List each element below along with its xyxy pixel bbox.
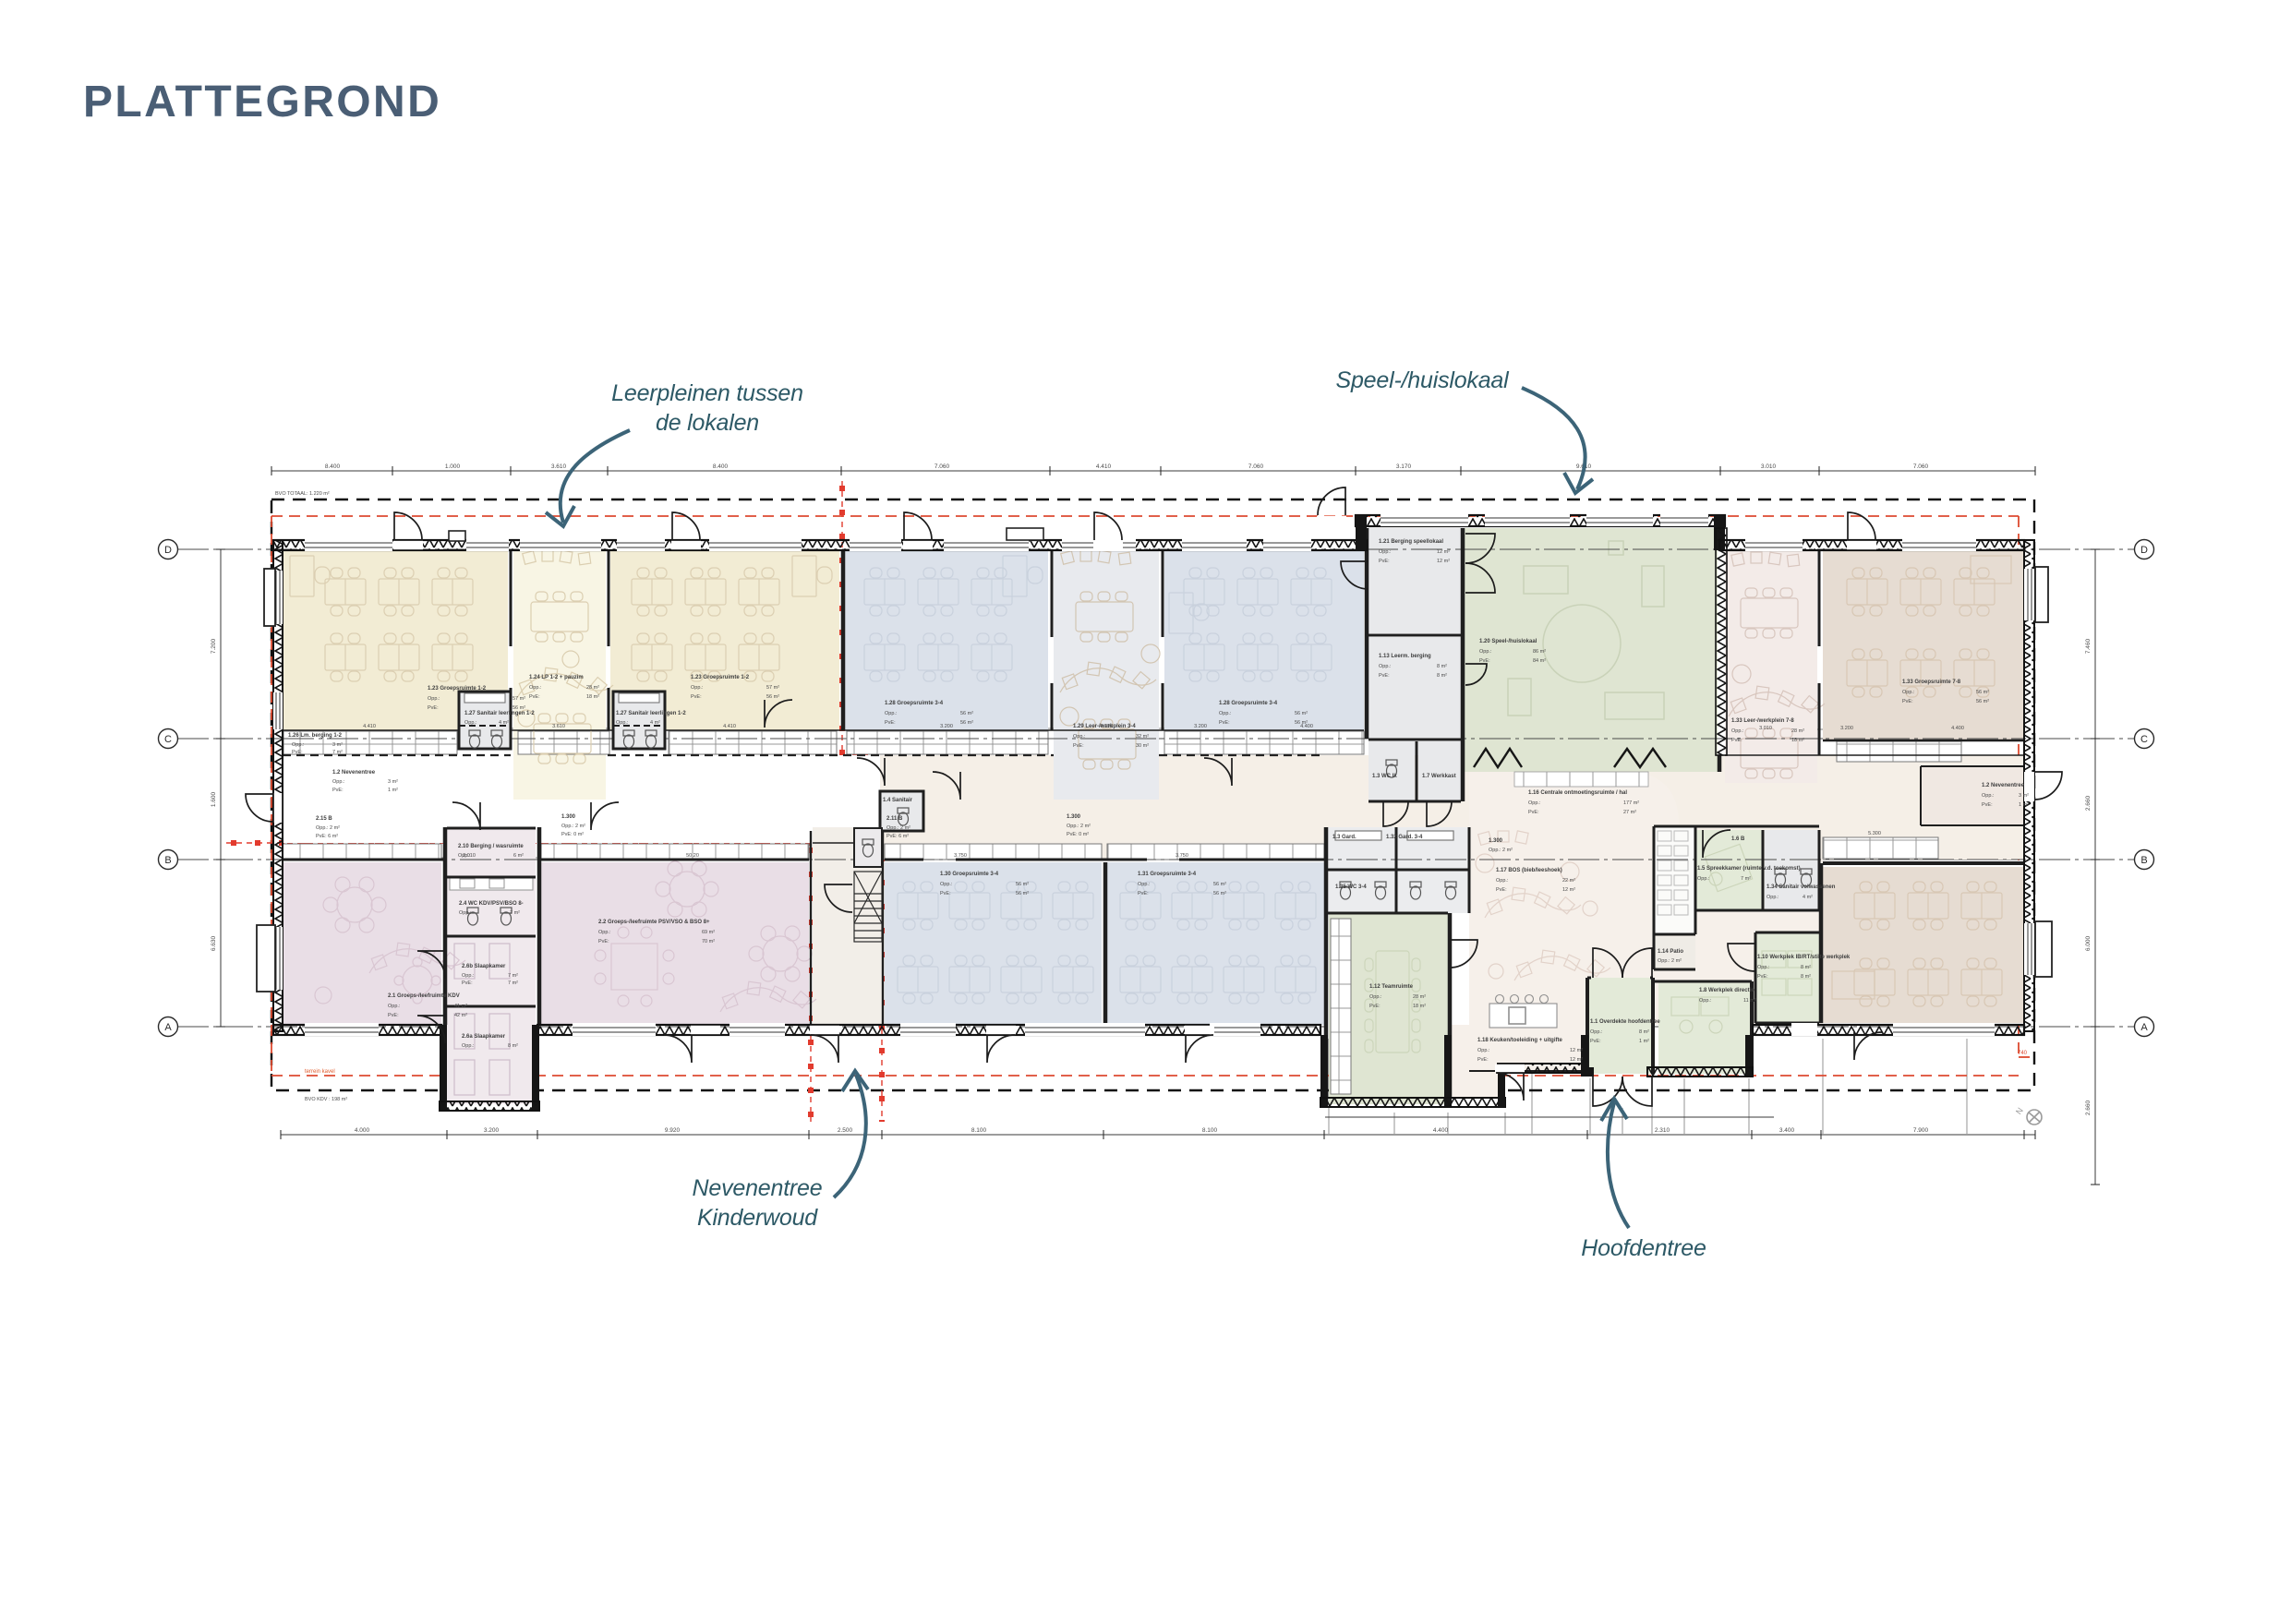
svg-text:1.4 Sanitair: 1.4 Sanitair bbox=[883, 798, 913, 803]
svg-text:1.33 Groepsruimte 7-8: 1.33 Groepsruimte 7-8 bbox=[1902, 680, 1961, 685]
svg-text:2.2 Groeps-/leefruimte PSV/VSO: 2.2 Groeps-/leefruimte PSV/VSO & BSO 8+ bbox=[598, 920, 710, 925]
svg-text:56 m²: 56 m² bbox=[960, 711, 973, 716]
svg-text:PvE:: PvE: bbox=[1379, 673, 1390, 679]
svg-text:Opp.: 2 m²: Opp.: 2 m² bbox=[316, 825, 340, 831]
svg-text:1.3 WC lk: 1.3 WC lk bbox=[1372, 774, 1397, 779]
svg-text:1.28 Groepsruimte 3-4: 1.28 Groepsruimte 3-4 bbox=[885, 701, 944, 706]
svg-text:1.16 Centrale ontmoetingsruimt: 1.16 Centrale ontmoetingsruimte / hal bbox=[1528, 790, 1627, 796]
svg-text:8.400: 8.400 bbox=[325, 463, 341, 470]
svg-text:PvE:: PvE: bbox=[1477, 1057, 1489, 1063]
svg-text:11 m²: 11 m² bbox=[1743, 998, 1756, 1004]
svg-text:Opp.:: Opp.: bbox=[1766, 895, 1779, 900]
svg-text:Hoofdentree: Hoofdentree bbox=[1581, 1235, 1706, 1261]
svg-text:Leerpleinen tussen: Leerpleinen tussen bbox=[611, 380, 803, 406]
svg-text:1.20 Speel-/huislokaal: 1.20 Speel-/huislokaal bbox=[1479, 639, 1537, 644]
svg-text:4 m²: 4 m² bbox=[1803, 895, 1813, 900]
svg-text:PvE:: PvE: bbox=[691, 694, 702, 700]
svg-text:1.5 Spreekkamer (ruimte v.d. t: 1.5 Spreekkamer (ruimte v.d. toekomst) bbox=[1697, 866, 1801, 872]
svg-text:57 m²: 57 m² bbox=[766, 685, 779, 691]
svg-text:4.410: 4.410 bbox=[1096, 463, 1112, 470]
svg-text:1.2 Nevenentree: 1.2 Nevenentree bbox=[1982, 783, 2025, 788]
svg-text:PvE:: PvE: bbox=[1369, 1004, 1381, 1009]
svg-text:PvE:: PvE: bbox=[332, 788, 344, 793]
svg-text:PvE:: PvE: bbox=[529, 694, 540, 700]
svg-text:4.100: 4.100 bbox=[1100, 724, 1113, 729]
svg-text:PvE:: PvE: bbox=[292, 750, 303, 755]
svg-text:3.750: 3.750 bbox=[954, 853, 967, 859]
svg-text:1.14 Patio: 1.14 Patio bbox=[1658, 949, 1683, 955]
svg-text:Opp.:: Opp.: bbox=[1073, 734, 1086, 740]
svg-text:2.6b Slaapkamer: 2.6b Slaapkamer bbox=[462, 964, 506, 969]
svg-text:Opp.:: Opp.: bbox=[292, 742, 305, 748]
svg-text:Opp.:: Opp.: bbox=[885, 711, 898, 716]
svg-text:7 m²: 7 m² bbox=[332, 750, 343, 755]
svg-text:C: C bbox=[164, 734, 172, 745]
svg-text:9.920: 9.920 bbox=[665, 1127, 681, 1134]
svg-text:PvE:: PvE: bbox=[1731, 738, 1742, 743]
svg-text:12 m²: 12 m² bbox=[1562, 887, 1575, 893]
svg-text:2.310: 2.310 bbox=[1655, 1127, 1670, 1134]
svg-text:18 m²: 18 m² bbox=[1791, 738, 1804, 743]
svg-text:18 m²: 18 m² bbox=[1413, 1004, 1426, 1009]
svg-text:1.27 Sanitair leerlingen 1-2: 1.27 Sanitair leerlingen 1-2 bbox=[464, 711, 535, 716]
svg-text:Opp.:: Opp.: bbox=[691, 685, 704, 691]
svg-text:2.500: 2.500 bbox=[838, 1127, 853, 1134]
svg-text:4.400: 4.400 bbox=[1951, 726, 1964, 731]
svg-text:7.060: 7.060 bbox=[1248, 463, 1264, 470]
svg-text:1.18 Keuken/toeleiding + uitgi: 1.18 Keuken/toeleiding + uitgifte bbox=[1477, 1038, 1563, 1043]
svg-text:4.410: 4.410 bbox=[363, 724, 376, 729]
svg-text:3.200: 3.200 bbox=[1194, 724, 1207, 729]
svg-text:7 m²: 7 m² bbox=[508, 980, 518, 986]
svg-text:B: B bbox=[164, 855, 171, 866]
svg-text:PvE:: PvE: bbox=[1073, 743, 1084, 749]
svg-text:Opp.:: Opp.: bbox=[1757, 965, 1770, 970]
svg-text:Opp.:: Opp.: bbox=[1902, 690, 1915, 695]
svg-text:41 m²: 41 m² bbox=[454, 1004, 467, 1009]
svg-text:7 m²: 7 m² bbox=[510, 910, 520, 916]
svg-text:1 m²: 1 m² bbox=[1639, 1039, 1649, 1044]
svg-text:1 m²: 1 m² bbox=[388, 788, 398, 793]
svg-text:3.010: 3.010 bbox=[1759, 726, 1772, 731]
svg-text:4.000: 4.000 bbox=[355, 1127, 370, 1134]
svg-text:3.200: 3.200 bbox=[940, 724, 953, 729]
svg-text:8.100: 8.100 bbox=[1202, 1127, 1218, 1134]
svg-text:Opp.:: Opp.: bbox=[1379, 549, 1392, 555]
svg-text:3.170: 3.170 bbox=[1396, 463, 1412, 470]
svg-text:56 m²: 56 m² bbox=[1976, 690, 1989, 695]
svg-text:56 m²: 56 m² bbox=[1016, 882, 1029, 887]
svg-text:4.400: 4.400 bbox=[1433, 1127, 1449, 1134]
svg-text:2.6a Slaapkamer: 2.6a Slaapkamer bbox=[462, 1034, 506, 1040]
svg-text:4.410: 4.410 bbox=[723, 724, 736, 729]
svg-text:PvE:: PvE: bbox=[1379, 559, 1390, 564]
svg-text:57 m²: 57 m² bbox=[512, 696, 525, 702]
svg-text:Opp.:: Opp.: bbox=[462, 1043, 475, 1049]
svg-text:PvE:: PvE: bbox=[1479, 658, 1490, 664]
svg-text:2.660: 2.660 bbox=[2085, 1100, 2092, 1115]
svg-text:1.1 Overdekte hoofdentree: 1.1 Overdekte hoofdentree bbox=[1590, 1019, 1660, 1025]
svg-text:28 m²: 28 m² bbox=[1413, 994, 1426, 1000]
svg-text:18 m²: 18 m² bbox=[586, 694, 599, 700]
svg-text:1.33 Leer-/werkplein 7-8: 1.33 Leer-/werkplein 7-8 bbox=[1731, 718, 1794, 724]
svg-text:3 m²: 3 m² bbox=[388, 779, 398, 785]
svg-text:Opp.:: Opp.: bbox=[598, 930, 611, 935]
svg-text:4 m²: 4 m² bbox=[650, 720, 660, 726]
svg-text:56 m²: 56 m² bbox=[1295, 711, 1308, 716]
svg-text:3.610: 3.610 bbox=[551, 463, 567, 470]
svg-text:1.13 Leerm. berging: 1.13 Leerm. berging bbox=[1379, 654, 1431, 659]
svg-text:27 m²: 27 m² bbox=[1623, 810, 1636, 815]
svg-text:BVO TOTAAL: 1.220 m²: BVO TOTAAL: 1.220 m² bbox=[275, 491, 330, 497]
svg-text:32 m²: 32 m² bbox=[1136, 734, 1149, 740]
svg-text:7.900: 7.900 bbox=[1913, 1127, 1929, 1134]
svg-text:7.200: 7.200 bbox=[211, 638, 217, 654]
svg-text:Speel-/huislokaal: Speel-/huislokaal bbox=[1336, 367, 1511, 393]
svg-text:1.8 Werkplek directie: 1.8 Werkplek directie bbox=[1699, 988, 1754, 993]
svg-text:1 m²: 1 m² bbox=[2019, 802, 2029, 808]
svg-text:Nevenentree: Nevenentree bbox=[693, 1175, 823, 1201]
svg-text:Opp.:: Opp.: bbox=[616, 720, 629, 726]
svg-text:1.27 Sanitair leerlingen 1-2: 1.27 Sanitair leerlingen 1-2 bbox=[616, 711, 686, 716]
svg-text:A: A bbox=[2140, 1022, 2148, 1033]
svg-text:C: C bbox=[2140, 734, 2148, 745]
svg-text:Opp.:: Opp.: bbox=[464, 720, 477, 726]
svg-text:D: D bbox=[164, 545, 172, 556]
svg-text:2.11 B: 2.11 B bbox=[886, 816, 903, 822]
svg-text:1.24 LP 1-2 + pauzim: 1.24 LP 1-2 + pauzim bbox=[529, 675, 584, 680]
svg-text:Opp.:: Opp.: bbox=[1477, 1048, 1490, 1053]
svg-text:3.200: 3.200 bbox=[484, 1127, 500, 1134]
svg-text:1.23 Groepsruimte 1-2: 1.23 Groepsruimte 1-2 bbox=[428, 686, 487, 692]
svg-text:56 m²: 56 m² bbox=[766, 694, 779, 700]
svg-text:740: 740 bbox=[2018, 1051, 2028, 1056]
svg-text:Opp.: 2 m²: Opp.: 2 m² bbox=[1658, 958, 1682, 964]
svg-text:PvE:: PvE: bbox=[1902, 699, 1913, 704]
svg-text:3.200: 3.200 bbox=[1840, 726, 1853, 731]
svg-text:1.300: 1.300 bbox=[1489, 838, 1503, 844]
svg-text:PLATTEGROND: PLATTEGROND bbox=[83, 78, 441, 126]
svg-text:7 m²: 7 m² bbox=[508, 973, 518, 979]
svg-text:Opp.:: Opp.: bbox=[1369, 994, 1382, 1000]
svg-text:12 m²: 12 m² bbox=[1437, 559, 1450, 564]
svg-text:Opp.:: Opp.: bbox=[1138, 882, 1151, 887]
svg-text:28 m²: 28 m² bbox=[586, 685, 599, 691]
svg-text:5.300: 5.300 bbox=[1868, 831, 1881, 836]
svg-text:3.400: 3.400 bbox=[1779, 1127, 1795, 1134]
svg-text:1.300: 1.300 bbox=[1067, 814, 1081, 820]
svg-text:4 m²: 4 m² bbox=[499, 720, 509, 726]
svg-text:1.6 B: 1.6 B bbox=[1731, 836, 1745, 842]
svg-text:1.600: 1.600 bbox=[211, 791, 217, 807]
svg-text:12 m²: 12 m² bbox=[1570, 1057, 1583, 1063]
svg-text:12 m²: 12 m² bbox=[1570, 1048, 1583, 1053]
svg-text:PvE:: PvE: bbox=[885, 720, 896, 726]
svg-text:PvE:: PvE: bbox=[428, 705, 439, 711]
svg-text:1.32 Gard. 3-4: 1.32 Gard. 3-4 bbox=[1386, 835, 1423, 840]
svg-text:22 m²: 22 m² bbox=[1562, 878, 1575, 884]
svg-text:7.460: 7.460 bbox=[2085, 638, 2092, 654]
svg-text:1.12 Teamruimte: 1.12 Teamruimte bbox=[1369, 984, 1414, 990]
svg-text:PvE: 0 m²: PvE: 0 m² bbox=[1067, 832, 1089, 837]
svg-text:Opp.:: Opp.: bbox=[1590, 1029, 1603, 1035]
svg-text:56 m²: 56 m² bbox=[1016, 891, 1029, 896]
svg-text:PvE:: PvE: bbox=[1219, 720, 1230, 726]
svg-text:Opp.:: Opp.: bbox=[529, 685, 542, 691]
svg-text:Opp.:: Opp.: bbox=[940, 882, 953, 887]
svg-text:84 m²: 84 m² bbox=[1533, 658, 1546, 664]
svg-text:6.630: 6.630 bbox=[211, 935, 217, 951]
svg-text:Opp.: 2 m²: Opp.: 2 m² bbox=[886, 825, 910, 831]
svg-text:6 m²: 6 m² bbox=[513, 853, 524, 859]
svg-text:8 m²: 8 m² bbox=[508, 1043, 518, 1049]
svg-text:PvE:: PvE: bbox=[1757, 974, 1768, 980]
svg-text:1.2 Nevenentree: 1.2 Nevenentree bbox=[332, 770, 376, 776]
svg-text:Opp.: 2 m²: Opp.: 2 m² bbox=[561, 824, 585, 829]
svg-text:2.010: 2.010 bbox=[463, 853, 476, 859]
svg-text:8 m²: 8 m² bbox=[1801, 965, 1811, 970]
svg-text:Opp.:: Opp.: bbox=[1479, 649, 1492, 655]
svg-text:PvE:: PvE: bbox=[1982, 802, 1993, 808]
svg-text:BVO KDV : 198 m²: BVO KDV : 198 m² bbox=[305, 1097, 347, 1102]
svg-text:6.000: 6.000 bbox=[2085, 935, 2092, 951]
svg-text:1.31 Groepsruimte 3-4: 1.31 Groepsruimte 3-4 bbox=[1138, 872, 1197, 877]
svg-text:8 m²: 8 m² bbox=[1437, 664, 1447, 669]
svg-text:1.30 Groepsruimte 3-4: 1.30 Groepsruimte 3-4 bbox=[940, 872, 999, 877]
svg-text:42 m²: 42 m² bbox=[454, 1013, 467, 1018]
svg-text:Opp.:: Opp.: bbox=[388, 1004, 401, 1009]
svg-text:7.060: 7.060 bbox=[1913, 463, 1929, 470]
svg-text:3.010: 3.010 bbox=[1761, 463, 1777, 470]
svg-text:30 m²: 30 m² bbox=[1136, 743, 1149, 749]
svg-text:Opp.:: Opp.: bbox=[428, 696, 440, 702]
svg-text:1.000: 1.000 bbox=[445, 463, 461, 470]
svg-text:70 m²: 70 m² bbox=[702, 939, 715, 944]
svg-text:Opp.:: Opp.: bbox=[1219, 711, 1232, 716]
svg-text:PvE:: PvE: bbox=[462, 980, 473, 986]
svg-text:Opp.:: Opp.: bbox=[1982, 793, 1995, 799]
svg-text:A: A bbox=[164, 1022, 172, 1033]
svg-text:terrein kavel: terrein kavel bbox=[305, 1069, 335, 1075]
svg-text:2.15 B: 2.15 B bbox=[316, 816, 332, 822]
svg-text:8.100: 8.100 bbox=[971, 1127, 987, 1134]
svg-text:D: D bbox=[2140, 545, 2148, 556]
svg-text:1.17 BOS (bieb/leeshoek): 1.17 BOS (bieb/leeshoek) bbox=[1496, 868, 1562, 873]
svg-text:Opp.:: Opp.: bbox=[462, 973, 475, 979]
svg-text:177 m²: 177 m² bbox=[1623, 800, 1639, 806]
svg-text:8.400: 8.400 bbox=[713, 463, 729, 470]
svg-text:1.300: 1.300 bbox=[561, 814, 576, 820]
svg-text:PvE: 6 m²: PvE: 6 m² bbox=[886, 834, 909, 839]
svg-text:7 m²: 7 m² bbox=[1741, 876, 1751, 882]
svg-text:12 m²: 12 m² bbox=[1437, 549, 1450, 555]
svg-text:Opp.:: Opp.: bbox=[1699, 998, 1712, 1004]
svg-text:8 m²: 8 m² bbox=[1437, 673, 1447, 679]
svg-text:4.400: 4.400 bbox=[1300, 724, 1313, 729]
svg-text:Opp.:: Opp.: bbox=[1731, 728, 1744, 734]
svg-text:Opp.:: Opp.: bbox=[1496, 878, 1509, 884]
svg-text:PvE:: PvE: bbox=[940, 891, 951, 896]
svg-text:Kinderwoud: Kinderwoud bbox=[697, 1205, 818, 1231]
svg-text:PvE: 6 m²: PvE: 6 m² bbox=[316, 834, 338, 839]
svg-text:2.1 Groeps-/leefruimte KDV: 2.1 Groeps-/leefruimte KDV bbox=[388, 993, 460, 999]
svg-text:56 m²: 56 m² bbox=[1213, 891, 1226, 896]
svg-text:1.21 Berging speellokaal: 1.21 Berging speellokaal bbox=[1379, 539, 1443, 545]
svg-text:de lokalen: de lokalen bbox=[656, 410, 759, 436]
svg-text:8 m²: 8 m² bbox=[1639, 1029, 1649, 1035]
svg-text:8 m²: 8 m² bbox=[1801, 974, 1811, 980]
svg-text:1.10 Werkplek IB/RT/stilte wer: 1.10 Werkplek IB/RT/stilte werkplek bbox=[1757, 955, 1851, 960]
svg-text:3 m²: 3 m² bbox=[332, 742, 343, 748]
svg-text:56 m²: 56 m² bbox=[1976, 699, 1989, 704]
svg-text:PvE:: PvE: bbox=[1138, 891, 1149, 896]
svg-text:1.35 WC 3-4: 1.35 WC 3-4 bbox=[1335, 884, 1367, 890]
svg-text:PvE:: PvE: bbox=[388, 1013, 399, 1018]
svg-text:7.060: 7.060 bbox=[934, 463, 950, 470]
svg-text:28 m²: 28 m² bbox=[1791, 728, 1804, 734]
svg-text:PvE:: PvE: bbox=[1590, 1039, 1601, 1044]
svg-text:2.660: 2.660 bbox=[2085, 795, 2092, 811]
svg-text:3.750: 3.750 bbox=[1176, 853, 1188, 859]
svg-text:PvE:: PvE: bbox=[1528, 810, 1539, 815]
svg-text:PvE:: PvE: bbox=[1496, 887, 1507, 893]
svg-text:3.610: 3.610 bbox=[552, 724, 565, 729]
svg-text:PvE:: PvE: bbox=[598, 939, 609, 944]
svg-text:2.4 WC KDV/PSV/BSO 8-: 2.4 WC KDV/PSV/BSO 8- bbox=[459, 901, 524, 907]
svg-text:3 m²: 3 m² bbox=[2019, 793, 2029, 799]
svg-text:B: B bbox=[2140, 855, 2147, 866]
svg-text:56 m²: 56 m² bbox=[1213, 882, 1226, 887]
svg-text:Opp.:: Opp.: bbox=[459, 910, 472, 916]
svg-text:Opp.: 2 m²: Opp.: 2 m² bbox=[1489, 848, 1513, 853]
svg-text:Opp.:: Opp.: bbox=[1528, 800, 1541, 806]
svg-text:PvE: 0 m²: PvE: 0 m² bbox=[561, 832, 584, 837]
svg-text:Opp.:: Opp.: bbox=[1379, 664, 1392, 669]
svg-text:Opp.:: Opp.: bbox=[332, 779, 345, 785]
svg-text:86 m²: 86 m² bbox=[1533, 649, 1546, 655]
svg-text:1.26 Lm. berging 1-2: 1.26 Lm. berging 1-2 bbox=[288, 733, 343, 739]
svg-text:1.28 Groepsruimte 3-4: 1.28 Groepsruimte 3-4 bbox=[1219, 701, 1278, 706]
svg-text:Opp.:: Opp.: bbox=[1697, 876, 1710, 882]
svg-text:1.23 Groepsruimte 1-2: 1.23 Groepsruimte 1-2 bbox=[691, 675, 750, 680]
svg-text:Opp.: 2 m²: Opp.: 2 m² bbox=[1067, 824, 1091, 829]
svg-text:1.7 Werkkast: 1.7 Werkkast bbox=[1422, 774, 1456, 779]
svg-text:69 m²: 69 m² bbox=[702, 930, 715, 935]
svg-text:50.20: 50.20 bbox=[686, 853, 699, 859]
svg-text:2.10 Berging / wasruimte: 2.10 Berging / wasruimte bbox=[458, 844, 524, 849]
svg-text:1.3 Gard.: 1.3 Gard. bbox=[1332, 835, 1357, 840]
svg-text:56 m²: 56 m² bbox=[960, 720, 973, 726]
svg-text:1.34 Sanitair volwassenen: 1.34 Sanitair volwassenen bbox=[1766, 884, 1836, 890]
